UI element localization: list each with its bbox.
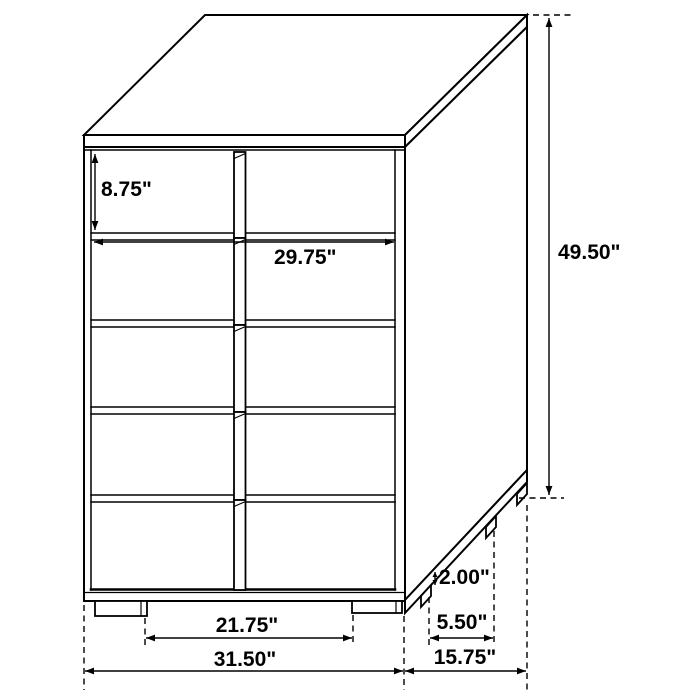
side-feet-spacing-label: 5.50" — [437, 611, 488, 634]
drawer-handle-1 — [234, 152, 246, 238]
drawer-handle-4 — [234, 412, 246, 500]
front-feet-spacing-label: 21.75" — [216, 614, 279, 637]
overall-height-label: 49.50" — [558, 241, 621, 264]
front-right-foot — [352, 601, 402, 613]
dim-foot-height: 2.00" — [435, 566, 490, 589]
front-left-foot — [95, 601, 147, 616]
foot-height-label: 2.00" — [439, 566, 490, 589]
drawer-handle-5 — [234, 500, 246, 590]
drawer-handle-3 — [234, 325, 246, 412]
diagram-svg: 8.75" 29.75" 49.50" 2.00" 5.50" 21.75" 3… — [0, 0, 700, 700]
drawer-handle-2 — [234, 238, 246, 325]
overall-depth-label: 15.75" — [434, 646, 497, 669]
drawer-handles — [234, 152, 246, 590]
overall-width-label: 31.50" — [214, 648, 277, 671]
furniture-dimension-diagram: 8.75" 29.75" 49.50" 2.00" 5.50" 21.75" 3… — [0, 0, 700, 700]
opening-width-label: 29.75" — [274, 246, 337, 269]
drawer-height-label: 8.75" — [101, 178, 152, 201]
top-front-edge — [84, 135, 405, 147]
